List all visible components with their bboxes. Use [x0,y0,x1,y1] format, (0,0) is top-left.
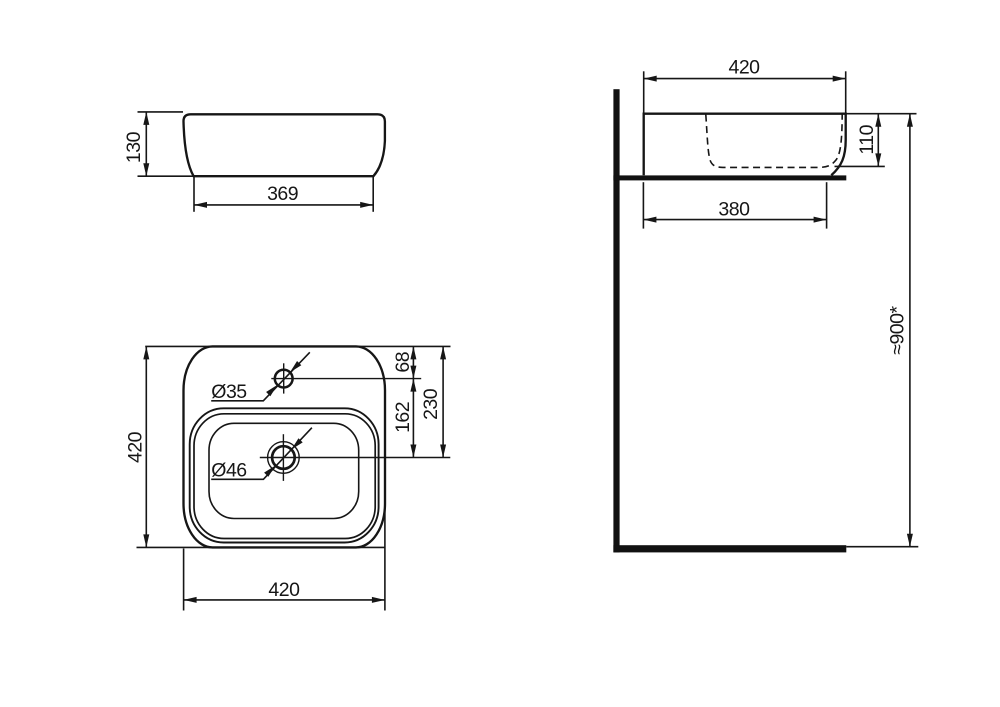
svg-text:369: 369 [267,183,298,205]
svg-text:230: 230 [420,388,442,420]
svg-text:Ø35: Ø35 [211,381,247,403]
svg-text:110: 110 [856,124,878,154]
svg-text:380: 380 [718,198,750,220]
svg-text:420: 420 [125,431,147,463]
svg-text:Ø46: Ø46 [211,460,246,482]
svg-text:420: 420 [268,579,300,601]
svg-text:68: 68 [392,352,414,373]
svg-text:420: 420 [728,57,760,79]
svg-text:≈900*: ≈900* [886,306,908,355]
svg-text:130: 130 [123,131,145,163]
svg-text:162: 162 [392,402,414,433]
